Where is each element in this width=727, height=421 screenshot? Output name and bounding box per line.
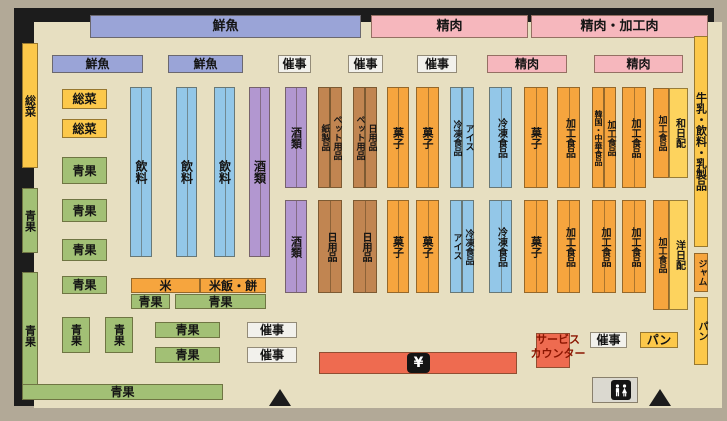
aisle-processed-food-2-upper: 加工食品 [604, 87, 616, 188]
banner-meat: 精肉 [371, 15, 528, 38]
shelf-rice-mochi-label: 米飯・餅 [209, 280, 257, 292]
cash-register-icon: ¥ [407, 353, 430, 373]
aisle-processed-food-4-lower: 加工食品 [653, 200, 669, 310]
aisle-liquor-2-lower-label: 酒類 [291, 236, 302, 258]
shelf-deli-1: 総菜 [62, 89, 107, 109]
wall-jam-label: ジャム [697, 259, 706, 286]
aisle-pet-supplies-1: ペット用品 [330, 87, 342, 188]
wall-milk-beverage-dairy: 牛乳・飲料・乳製品 [694, 36, 708, 247]
shelf-produce-3: 青果 [62, 239, 107, 261]
aisle-processed-food-4-lower-label: 加工食品 [657, 237, 666, 273]
shelf-event-1: 催事 [278, 55, 311, 73]
wall-produce-upper-label: 青果 [25, 210, 36, 232]
aisle-processed-food-3-upper: 加工食品 [622, 87, 646, 188]
aisle-daily-goods-2-upper-label: 日用品 [367, 124, 376, 151]
shelf-bread: パン [640, 332, 678, 348]
banner-meat-processed-meat: 精肉・加工肉 [531, 15, 708, 38]
aisle-beverage-2: 飲料 [176, 87, 197, 257]
shelf-event-3: 催事 [417, 55, 457, 73]
aisle-liquor-2-upper-label: 酒類 [291, 127, 302, 149]
shelf-meat-2: 精肉 [594, 55, 683, 73]
aisle-beverage-3: 飲料 [214, 87, 235, 257]
aisle-processed-food-2-lower: 加工食品 [592, 200, 616, 293]
aisle-processed-food-3-upper-label: 加工食品 [629, 118, 639, 158]
aisle-processed-food-1-lower-label: 加工食品 [564, 227, 574, 267]
wall-deli-label: 総菜 [25, 95, 36, 117]
banner-meat-label: 精肉 [436, 20, 462, 33]
shelf-event-2: 催事 [348, 55, 383, 73]
aisle-snacks-2-lower-label: 菓子 [422, 236, 433, 258]
aisle-frozen-food-2-label: 冷凍食品 [464, 229, 473, 265]
aisle-pet-supplies-1-label: ペット用品 [332, 115, 341, 160]
produce-bottom-bar-label: 青果 [110, 386, 134, 398]
shelf-produce-1-label: 青果 [72, 165, 96, 177]
shelf-produce-5-label: 青果 [71, 324, 82, 346]
aisle-processed-food-3-lower-label: 加工食品 [629, 227, 639, 267]
aisle-beverage-1: 飲料 [130, 87, 152, 257]
aisle-liquor-2-lower: 酒類 [285, 200, 307, 293]
aisle-western-daily-delivery-label: 洋日配 [674, 240, 684, 270]
aisle-paper-products-label: 紙製品 [320, 124, 329, 151]
wall-milk-beverage-dairy-label: 牛乳・飲料・乳製品 [696, 92, 707, 191]
aisle-paper-products: 紙製品 [318, 87, 330, 188]
shelf-fresh-fish-2: 鮮魚 [168, 55, 243, 73]
yen-symbol: ¥ [414, 355, 424, 371]
entrance-arrow-right-icon [649, 389, 671, 406]
shelf-event-4-label: 催事 [260, 324, 284, 336]
aisle-snacks-2-upper-label: 菓子 [422, 127, 433, 149]
shelf-produce-8: 青果 [175, 294, 266, 309]
shelf-rice-label: 米 [159, 280, 171, 292]
aisle-frozen-food-3: 冷凍食品 [489, 87, 512, 188]
aisle-ice-cream-2-label: アイス [452, 233, 461, 260]
aisle-snacks-1-upper: 菓子 [387, 87, 409, 188]
banner-meat-processed-meat-label: 精肉・加工肉 [580, 20, 658, 33]
aisle-snacks-2-upper: 菓子 [416, 87, 439, 188]
restroom-icon [611, 380, 631, 400]
shelf-produce-6-label: 青果 [114, 324, 125, 346]
aisle-frozen-food-3-label: 冷凍食品 [496, 118, 506, 158]
aisle-japanese-daily-delivery: 和日配 [669, 88, 688, 178]
aisle-liquor-2-upper: 酒類 [285, 87, 307, 188]
aisle-frozen-food-1: 冷凍食品 [450, 87, 462, 188]
wall-produce-lower: 青果 [22, 272, 38, 400]
aisle-pet-supplies-2-label: ペット用品 [355, 115, 364, 160]
aisle-processed-food-2-upper-label: 加工食品 [606, 120, 615, 156]
aisle-snacks-3-upper: 菓子 [524, 87, 548, 188]
aisle-daily-goods-2-upper: 日用品 [365, 87, 377, 188]
wall-jam: ジャム [694, 253, 708, 292]
aisle-korean-chinese-food: 韓国・中華食品 [592, 87, 604, 188]
store-floor-plan: { "title": "supermarket-floor-plan", "co… [0, 0, 727, 421]
aisle-snacks-1-upper-label: 菓子 [393, 127, 404, 149]
shelf-produce-1: 青果 [62, 157, 107, 184]
aisle-snacks-1-lower: 菓子 [387, 200, 409, 293]
aisle-pet-supplies-2: ペット用品 [353, 87, 365, 188]
shelf-meat-1-label: 精肉 [515, 58, 539, 70]
shelf-event-5: 催事 [247, 347, 297, 363]
wall-produce-lower-label: 青果 [25, 325, 36, 347]
aisle-snacks-3-lower-label: 菓子 [531, 236, 542, 258]
shelf-bread-label: パン [647, 334, 672, 346]
shelf-produce-4-label: 青果 [72, 279, 96, 291]
aisle-frozen-food-2: 冷凍食品 [462, 200, 474, 293]
shelf-produce-6: 青果 [105, 317, 133, 353]
aisle-processed-food-4-upper-label: 加工食品 [657, 115, 666, 151]
shelf-event-2-label: 催事 [353, 58, 377, 70]
banner-fresh-fish-label: 鮮魚 [212, 20, 238, 33]
shelf-produce-10-label: 青果 [175, 349, 199, 361]
aisle-processed-food-1-upper-label: 加工食品 [564, 118, 574, 158]
shelf-meat-2-label: 精肉 [626, 58, 650, 70]
aisle-beverage-1-label: 飲料 [135, 160, 147, 184]
restroom-figures-icon [613, 383, 629, 398]
shelf-fresh-fish-1: 鮮魚 [52, 55, 143, 73]
aisle-beverage-2-label: 飲料 [181, 160, 193, 184]
entrance-arrow-left-icon [269, 389, 291, 406]
aisle-ice-cream-1-label: アイス [464, 124, 473, 151]
shelf-rice-mochi: 米飯・餅 [200, 278, 266, 293]
aisle-western-daily-delivery: 洋日配 [669, 200, 688, 310]
shelf-produce-7-label: 青果 [138, 296, 162, 308]
aisle-processed-food-1-upper: 加工食品 [557, 87, 580, 188]
shelf-event-4: 催事 [247, 322, 297, 338]
shelf-produce-10: 青果 [155, 347, 220, 363]
aisle-snacks-2-lower: 菓子 [416, 200, 439, 293]
aisle-korean-chinese-food-label: 韓国・中華食品 [594, 110, 602, 166]
aisle-frozen-food-1-label: 冷凍食品 [452, 120, 461, 156]
aisle-liquor-1-label: 酒類 [254, 160, 266, 184]
wall-deli: 総菜 [22, 43, 38, 168]
aisle-daily-goods-1-lower: 日用品 [318, 200, 342, 293]
shelf-event-1-label: 催事 [282, 58, 306, 70]
shelf-meat-1: 精肉 [487, 55, 567, 73]
shelf-produce-2: 青果 [62, 199, 107, 222]
shelf-produce-7: 青果 [131, 294, 170, 309]
shelf-fresh-fish-2-label: 鮮魚 [193, 58, 217, 70]
produce-bottom-bar: 青果 [22, 384, 223, 400]
shelf-event-5-label: 催事 [260, 349, 284, 361]
aisle-frozen-food-4-label: 冷凍食品 [496, 227, 506, 267]
aisle-daily-goods-2-lower-label: 日用品 [360, 232, 370, 262]
aisle-ice-cream-2: アイス [450, 200, 462, 293]
shelf-event-3-label: 催事 [425, 58, 449, 70]
wall-produce-upper: 青果 [22, 188, 38, 253]
shelf-deli-1-label: 総菜 [72, 93, 96, 105]
shelf-deli-2-label: 総菜 [72, 123, 96, 135]
shelf-deli-2: 総菜 [62, 119, 107, 138]
shelf-produce-3-label: 青果 [72, 244, 96, 256]
aisle-ice-cream-1: アイス [462, 87, 474, 188]
wall-bread-label: パン [696, 321, 706, 341]
shelf-produce-9-label: 青果 [175, 324, 199, 336]
wall-bread: パン [694, 297, 708, 365]
aisle-liquor-1: 酒類 [249, 87, 270, 257]
banner-fresh-fish: 鮮魚 [90, 15, 361, 38]
aisle-snacks-1-lower-label: 菓子 [393, 236, 404, 258]
aisle-beverage-3-label: 飲料 [219, 160, 231, 184]
aisle-snacks-3-upper-label: 菓子 [531, 127, 542, 149]
aisle-daily-goods-2-lower: 日用品 [353, 200, 377, 293]
shelf-rice: 米 [131, 278, 200, 293]
shelf-produce-8-label: 青果 [208, 296, 232, 308]
aisle-processed-food-4-upper: 加工食品 [653, 88, 669, 178]
shelf-produce-9: 青果 [155, 322, 220, 338]
aisle-snacks-3-lower: 菓子 [524, 200, 548, 293]
aisle-japanese-daily-delivery-label: 和日配 [674, 118, 684, 148]
aisle-processed-food-3-lower: 加工食品 [622, 200, 646, 293]
service-counter-label: サービス カウンター [512, 333, 604, 361]
shelf-produce-4: 青果 [62, 276, 107, 294]
shelf-fresh-fish-1-label: 鮮魚 [85, 58, 109, 70]
shelf-produce-2-label: 青果 [72, 205, 96, 217]
shelf-produce-5: 青果 [62, 317, 90, 353]
aisle-processed-food-1-lower: 加工食品 [557, 200, 580, 293]
aisle-frozen-food-4: 冷凍食品 [489, 200, 512, 293]
aisle-daily-goods-1-lower-label: 日用品 [325, 232, 335, 262]
aisle-processed-food-2-lower-label: 加工食品 [599, 227, 609, 267]
